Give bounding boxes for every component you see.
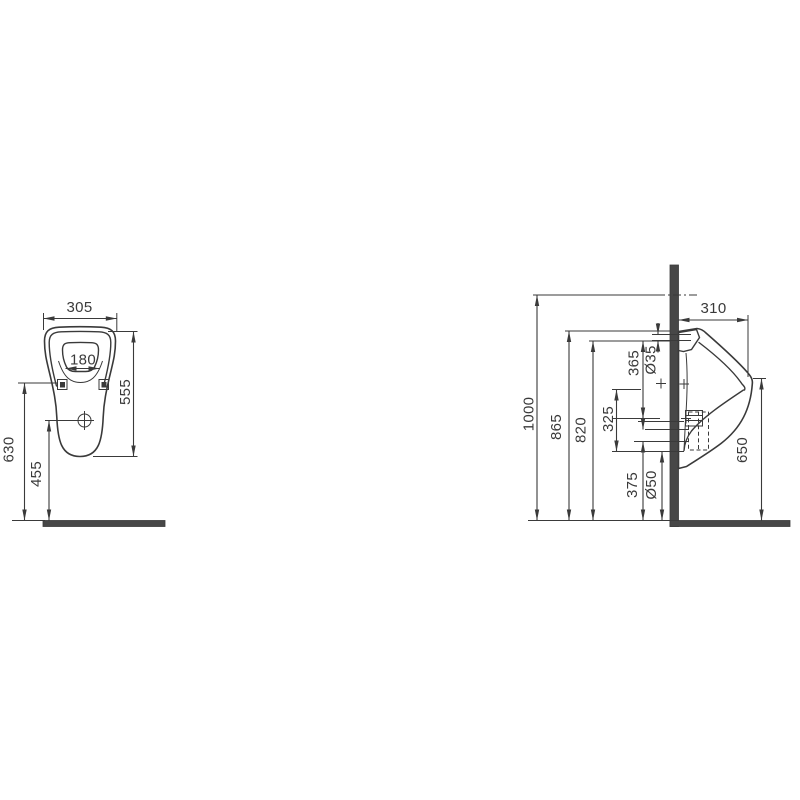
floor-slab-front bbox=[43, 521, 165, 527]
dim-side-outlet-drop: 375 bbox=[624, 472, 641, 498]
front-view: 305 180 555 630 455 bbox=[1, 299, 166, 527]
dim-side-depth: 310 bbox=[701, 300, 727, 317]
dim-side-top-height: 865 bbox=[548, 414, 565, 440]
drawing-canvas: 305 180 555 630 455 bbox=[0, 0, 800, 800]
dim-side-ref-height: 1000 bbox=[521, 397, 538, 432]
dim-side-inlet-dia: Ø35 bbox=[643, 345, 660, 374]
dim-front-outlet-height: 455 bbox=[28, 461, 45, 487]
dim-side-outlet-dia: Ø50 bbox=[643, 470, 660, 499]
dim-front-fixing-height: 630 bbox=[1, 437, 18, 463]
urinal-front-outline bbox=[45, 327, 116, 457]
wall-section bbox=[670, 265, 679, 527]
dim-side-inlet-drop: 365 bbox=[626, 350, 643, 376]
dim-side-rim-height: 820 bbox=[573, 417, 590, 443]
dim-front-inner-width: 180 bbox=[70, 352, 96, 369]
dim-front-height: 555 bbox=[117, 379, 134, 405]
dim-side-lip-height: 650 bbox=[734, 437, 751, 463]
fixing-hole-cross-wall bbox=[656, 379, 666, 389]
dim-side-mid-span: 325 bbox=[600, 406, 617, 432]
dim-front-width: 305 bbox=[67, 299, 93, 316]
floor-slab-side bbox=[670, 521, 790, 527]
technical-drawing: 305 180 555 630 455 bbox=[0, 0, 800, 800]
side-view: 1000 865 820 365 Ø35 325 375 Ø50 310 650 bbox=[521, 265, 791, 527]
